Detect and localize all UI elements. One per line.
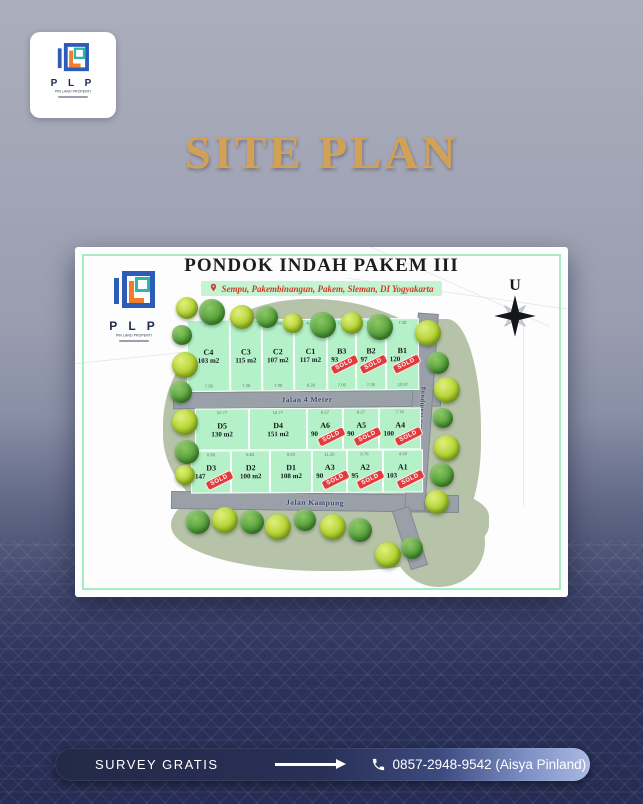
plot-dim-bottom: 7.38 bbox=[362, 383, 381, 387]
plot-cell-d1: 9.83 D1 108 m2 bbox=[270, 450, 312, 493]
brand-tagline: PIN LAND PROPERTI bbox=[55, 90, 91, 94]
road-bottom-label: Jalan Kampung bbox=[286, 497, 344, 507]
plot-id: A2 bbox=[360, 463, 370, 472]
phone-number: 0857-2948-9542 (Aisya Pinland) bbox=[393, 757, 587, 772]
plot-area: 151 m2 bbox=[267, 430, 289, 438]
plot-area: 115 m2 bbox=[235, 356, 256, 364]
footer-contact-bar: SURVEY GRATIS 0857-2948-9542 (Aisya Pinl… bbox=[55, 748, 590, 781]
plot-id: D3 bbox=[206, 463, 216, 472]
plot-dim-bottom: 7.38 bbox=[194, 385, 223, 389]
plot-area: 90 bbox=[311, 429, 318, 437]
tree-icon bbox=[175, 440, 199, 464]
tree-icon bbox=[430, 463, 454, 487]
plot-id: A4 bbox=[395, 420, 405, 429]
plot-dim-top: 8.76 bbox=[353, 453, 376, 457]
map-brand-logo: P L P PIN LAND PROPERTI bbox=[91, 269, 177, 342]
plot-area: 90 bbox=[316, 472, 323, 480]
plot-area: 90 bbox=[347, 429, 354, 437]
plot-dim-top: 6.85 bbox=[198, 453, 225, 457]
plot-id: A5 bbox=[356, 420, 366, 429]
plot-dim-top: 7.78 bbox=[386, 410, 414, 414]
plot-dim-top: 8.27 bbox=[349, 411, 373, 415]
plot-cell-a6: 8.27 A6 90 SOLD bbox=[307, 408, 343, 450]
tree-icon bbox=[415, 320, 441, 346]
tree-icon bbox=[348, 518, 372, 542]
plot-cell-a1: 4.53 A1 103 SOLD bbox=[382, 449, 423, 492]
sold-stamp: SOLD bbox=[355, 469, 385, 491]
plp-logo-icon bbox=[111, 269, 157, 315]
brand-subtagline-bar bbox=[119, 340, 149, 342]
tree-icon bbox=[199, 299, 225, 325]
tree-icon bbox=[265, 514, 291, 540]
tree-icon bbox=[230, 305, 254, 329]
plot-dim-bottom: 6.32 bbox=[300, 384, 322, 388]
plot-id: C2 bbox=[273, 347, 283, 356]
tree-icon bbox=[170, 381, 192, 403]
plot-cell-a4: 7.78 A4 100 SOLD bbox=[379, 407, 421, 449]
tree-icon bbox=[401, 537, 423, 559]
plot-row-3: 6.85 D3 147 SOLD 5.82 D2 100 m2 9.83 D1 … bbox=[191, 449, 423, 493]
sold-stamp: SOLD bbox=[204, 470, 234, 492]
plot-id: A3 bbox=[325, 463, 335, 472]
plot-cell-a3: 11.28 A3 90 SOLD bbox=[312, 450, 347, 493]
plot-id: D1 bbox=[286, 463, 296, 472]
brand-tagline: PIN LAND PROPERTI bbox=[116, 334, 152, 338]
plot-area: 103 m2 bbox=[198, 356, 220, 364]
plot-id: C4 bbox=[203, 347, 213, 356]
plot-id: C1 bbox=[306, 346, 316, 355]
plot-id: B3 bbox=[337, 346, 346, 355]
brand-initials: P L P bbox=[109, 319, 159, 333]
tree-icon bbox=[320, 514, 346, 540]
tree-icon bbox=[186, 510, 210, 534]
plot-cell-a2: 8.76 A2 95 SOLD bbox=[347, 450, 382, 493]
plot-area: 100 m2 bbox=[240, 472, 262, 480]
plot-dim-bottom: 10.87 bbox=[392, 383, 414, 387]
location-strip: Sempu, Pakembinangun, Pakem, Sleman, DI … bbox=[201, 281, 441, 296]
tree-icon bbox=[434, 377, 460, 403]
tree-icon bbox=[310, 312, 336, 338]
tree-icon bbox=[283, 313, 303, 333]
plot-dim-top: 11.28 bbox=[318, 453, 341, 457]
plot-id: C3 bbox=[241, 347, 251, 356]
plot-dim-bottom: 7.36 bbox=[236, 384, 257, 388]
plot-id: D2 bbox=[246, 463, 256, 472]
plot-id: B2 bbox=[366, 346, 375, 355]
tree-icon bbox=[341, 312, 363, 334]
plot-area: 95 bbox=[351, 472, 358, 480]
tree-icon bbox=[175, 465, 195, 485]
plp-logo-icon bbox=[56, 42, 91, 77]
plot-cell-c3: 7.06 C3 115 m2 7.36 bbox=[230, 319, 263, 391]
plot-area: 147 bbox=[195, 473, 206, 481]
plot-dim-top: 12.77 bbox=[258, 411, 297, 415]
brand-initials: P L P bbox=[51, 78, 96, 89]
tree-icon bbox=[294, 509, 316, 531]
phone-icon bbox=[371, 757, 386, 772]
plot-cell-d2: 5.82 D2 100 m2 bbox=[231, 450, 270, 493]
plot-dim-bottom: 7.00 bbox=[332, 383, 351, 387]
plot-dim-top: 5.82 bbox=[238, 453, 264, 457]
plot-cell-d4: 12.77 D4 151 m2 bbox=[249, 408, 307, 450]
tree-icon bbox=[427, 352, 449, 374]
plot-area: 108 m2 bbox=[280, 472, 302, 480]
plot-cell-d5: 10.77 D5 130 m2 bbox=[195, 408, 249, 450]
plot-area: 130 m2 bbox=[211, 430, 233, 438]
plot-dim-top: 9.83 bbox=[277, 453, 305, 457]
tree-icon bbox=[425, 490, 449, 514]
plot-dim-top: 10.77 bbox=[204, 411, 241, 415]
road-middle: Jalan 4 Meter bbox=[173, 390, 441, 410]
tree-icon bbox=[176, 297, 198, 319]
plot-area: 100 bbox=[383, 429, 394, 437]
plot-id: D4 bbox=[273, 421, 283, 430]
tree-icon bbox=[212, 507, 238, 533]
poster-title: SITE PLAN bbox=[0, 126, 643, 180]
tree-icon bbox=[256, 306, 278, 328]
sold-stamp: SOLD bbox=[396, 469, 426, 491]
plot-id: A6 bbox=[320, 420, 330, 429]
tree-icon bbox=[172, 409, 198, 435]
plot-id: A1 bbox=[398, 462, 408, 471]
plot-area: 117 m2 bbox=[300, 355, 321, 363]
tree-icon bbox=[375, 542, 401, 568]
map-location: Sempu, Pakembinangun, Pakem, Sleman, DI … bbox=[221, 284, 433, 294]
site-plan-card: PONDOK INDAH PAKEM III Sempu, Pakembinan… bbox=[75, 247, 568, 597]
compass-rose: U bbox=[487, 277, 543, 344]
plot-dim-bottom: 7.08 bbox=[268, 384, 289, 388]
plot-id: D5 bbox=[217, 421, 227, 430]
sold-stamp: SOLD bbox=[320, 469, 350, 491]
plot-area: 107 m2 bbox=[267, 356, 289, 364]
road-middle-label: Jalan 4 Meter bbox=[281, 395, 332, 405]
arrow-right-icon bbox=[275, 763, 337, 766]
compass-star-icon bbox=[492, 293, 538, 339]
plot-row-2: 10.77 D5 130 m2 12.77 D4 151 m2 8.27 A6 … bbox=[195, 407, 421, 450]
plot-dim-top: 8.27 bbox=[313, 411, 337, 415]
tree-icon bbox=[367, 314, 393, 340]
tree-icon bbox=[434, 435, 460, 461]
plot-dim-top: 4.53 bbox=[389, 452, 416, 456]
tree-icon bbox=[172, 352, 198, 378]
plot-area: 103 bbox=[387, 472, 398, 480]
tree-icon bbox=[433, 408, 453, 428]
tree-icon bbox=[240, 510, 264, 534]
survey-cta-label: SURVEY GRATIS bbox=[95, 757, 219, 772]
plot-cell-a5: 8.27 A5 90 SOLD bbox=[343, 408, 379, 450]
brand-logo-card: P L P PIN LAND PROPERTI bbox=[30, 32, 116, 118]
brand-subtagline-bar bbox=[58, 96, 88, 98]
phone-group: 0857-2948-9542 (Aisya Pinland) bbox=[371, 757, 587, 772]
plot-id: B1 bbox=[398, 346, 407, 355]
location-pin-icon bbox=[209, 282, 218, 293]
plot-dim-top: 7.28 bbox=[391, 321, 413, 325]
